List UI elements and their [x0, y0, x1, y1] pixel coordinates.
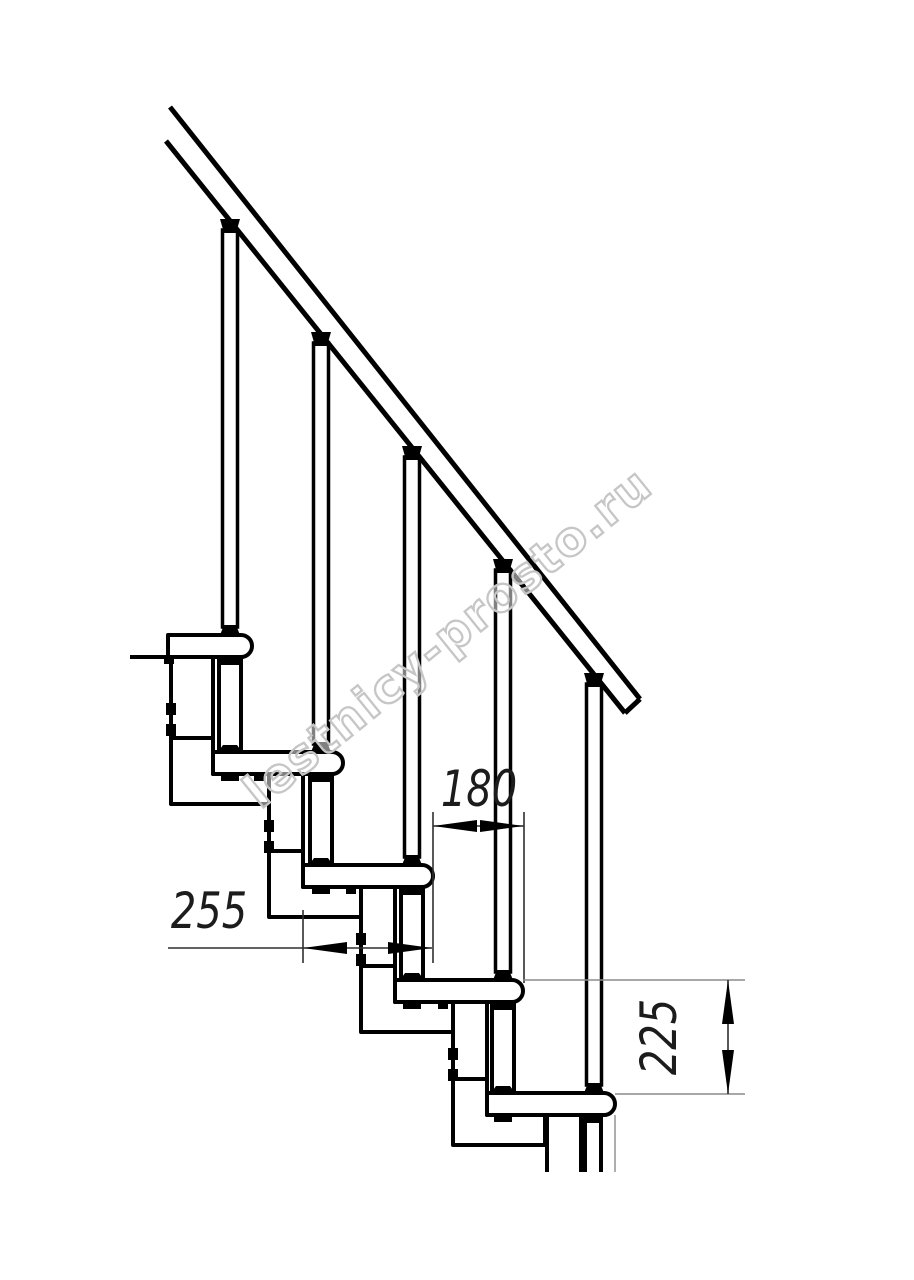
- support-tube-1: [219, 657, 241, 752]
- plate-tab-2b: [166, 724, 176, 736]
- plate-tab-4b: [356, 954, 366, 966]
- dimension-run-label: 180: [441, 760, 517, 819]
- baluster-2: [314, 343, 329, 744]
- drawing-svg: 180 255 225 lestnicy-prosto.ru: [0, 0, 914, 1280]
- support-tube-3: [401, 887, 423, 980]
- tread-5: [487, 1093, 615, 1115]
- plate-hanger-5: [438, 1002, 448, 1009]
- bracket-plate-6-cut: [547, 1115, 581, 1172]
- arrow-left-icon: [433, 820, 477, 832]
- arrow-left-icon: [303, 942, 347, 954]
- plate-tab-3a: [264, 820, 274, 832]
- support-tube-2: [310, 774, 332, 865]
- tread-1: [168, 635, 252, 657]
- support-tube-5-cut: [585, 1115, 601, 1172]
- plate-hanger-2: [164, 657, 174, 664]
- plate-tab-2a: [166, 703, 176, 715]
- tube-hanger-4: [494, 1002, 512, 1010]
- plate-tab-5a: [448, 1048, 458, 1060]
- plate-tab-5b: [448, 1069, 458, 1081]
- plate-tab-4a: [356, 933, 366, 945]
- baluster-1: [223, 230, 238, 627]
- plate-hanger-4: [346, 887, 356, 894]
- tube-hanger-5: [584, 1115, 602, 1123]
- handrail-end-cap: [625, 699, 640, 713]
- tube-hanger-3: [403, 887, 421, 895]
- baluster-5: [587, 684, 602, 1085]
- tube-clamp-4: [494, 1115, 512, 1122]
- tread-4: [395, 980, 523, 1002]
- plate-tab-3b: [264, 841, 274, 853]
- tube-clamp-3: [403, 1002, 421, 1009]
- arrow-down-icon: [722, 1050, 734, 1094]
- arrow-up-icon: [722, 980, 734, 1024]
- tube-hanger-1: [221, 657, 239, 665]
- dimension-depth-label: 255: [171, 882, 247, 941]
- tread-3: [303, 865, 433, 887]
- dimension-rise-label: 225: [630, 999, 689, 1075]
- tube-clamp-2: [312, 887, 330, 894]
- support-tube-4: [492, 1002, 514, 1093]
- dimension-rise: 225: [523, 980, 745, 1172]
- staircase-drawing: 180 255 225 lestnicy-prosto.ru: [0, 0, 914, 1280]
